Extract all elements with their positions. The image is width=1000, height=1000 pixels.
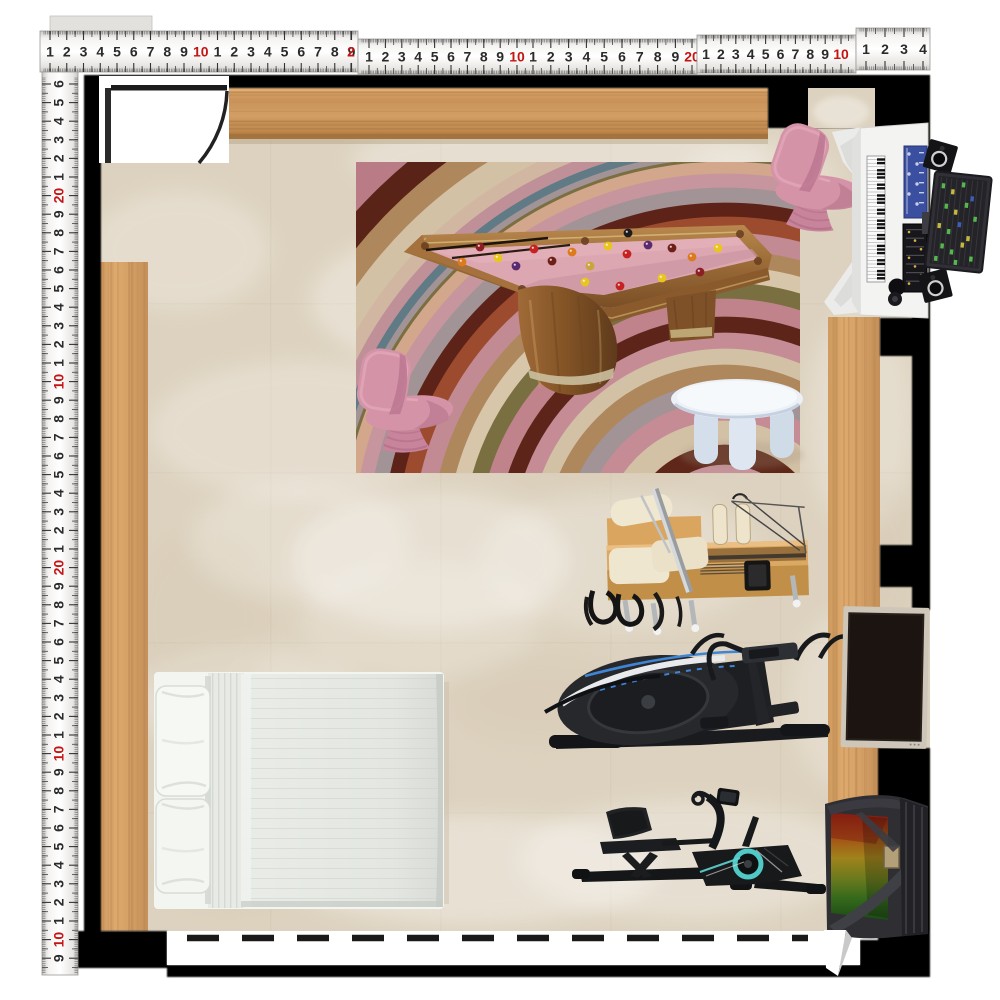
svg-text:2: 2 bbox=[717, 46, 725, 62]
svg-text:8: 8 bbox=[163, 44, 171, 60]
svg-text:3: 3 bbox=[565, 49, 573, 65]
svg-text:4: 4 bbox=[747, 46, 755, 62]
svg-text:5: 5 bbox=[113, 44, 121, 60]
svg-text:9: 9 bbox=[51, 396, 67, 404]
svg-text:4: 4 bbox=[51, 861, 67, 869]
svg-text:6: 6 bbox=[447, 49, 455, 65]
svg-text:8: 8 bbox=[51, 601, 67, 609]
svg-text:1: 1 bbox=[51, 173, 67, 181]
svg-text:9: 9 bbox=[180, 44, 188, 60]
svg-text:1: 1 bbox=[51, 359, 67, 367]
svg-text:9: 9 bbox=[496, 49, 504, 65]
svg-text:3: 3 bbox=[247, 44, 255, 60]
svg-text:8: 8 bbox=[51, 415, 67, 423]
svg-text:5: 5 bbox=[51, 656, 67, 664]
svg-text:5: 5 bbox=[762, 46, 770, 62]
svg-text:8: 8 bbox=[51, 229, 67, 237]
svg-text:2: 2 bbox=[382, 49, 390, 65]
svg-text:20: 20 bbox=[51, 560, 67, 576]
svg-text:7: 7 bbox=[147, 44, 155, 60]
svg-text:1: 1 bbox=[46, 44, 54, 60]
svg-text:7: 7 bbox=[636, 49, 644, 65]
svg-text:8: 8 bbox=[51, 787, 67, 795]
svg-text:9: 9 bbox=[821, 46, 829, 62]
svg-text:7: 7 bbox=[792, 46, 800, 62]
svg-text:8: 8 bbox=[331, 44, 339, 60]
svg-text:1: 1 bbox=[365, 49, 373, 65]
svg-text:9: 9 bbox=[51, 210, 67, 218]
svg-text:2: 2 bbox=[51, 340, 67, 348]
svg-text:10: 10 bbox=[51, 374, 67, 390]
svg-text:4: 4 bbox=[414, 49, 422, 65]
svg-text:1: 1 bbox=[529, 49, 537, 65]
svg-text:6: 6 bbox=[130, 44, 138, 60]
svg-text:1: 1 bbox=[51, 731, 67, 739]
svg-text:3: 3 bbox=[398, 49, 406, 65]
svg-text:6: 6 bbox=[51, 266, 67, 274]
svg-text:10: 10 bbox=[51, 746, 67, 762]
svg-text:2: 2 bbox=[63, 44, 71, 60]
svg-text:6: 6 bbox=[51, 80, 67, 88]
svg-text:3: 3 bbox=[51, 322, 67, 330]
svg-text:10: 10 bbox=[833, 46, 849, 62]
svg-text:7: 7 bbox=[51, 619, 67, 627]
svg-text:4: 4 bbox=[51, 489, 67, 497]
svg-text:5: 5 bbox=[51, 842, 67, 850]
svg-text:2: 2 bbox=[51, 898, 67, 906]
svg-text:6: 6 bbox=[297, 44, 305, 60]
svg-text:1: 1 bbox=[214, 44, 222, 60]
svg-text:9: 9 bbox=[51, 582, 67, 590]
svg-text:1: 1 bbox=[862, 41, 870, 57]
svg-text:2: 2 bbox=[547, 49, 555, 65]
svg-text:6: 6 bbox=[51, 452, 67, 460]
svg-text:3: 3 bbox=[51, 694, 67, 702]
svg-text:5: 5 bbox=[51, 284, 67, 292]
svg-text:10: 10 bbox=[51, 932, 67, 948]
svg-text:4: 4 bbox=[264, 44, 272, 60]
svg-text:4: 4 bbox=[51, 117, 67, 125]
svg-text:3: 3 bbox=[900, 41, 908, 57]
svg-text:5: 5 bbox=[600, 49, 608, 65]
svg-text:1: 1 bbox=[51, 917, 67, 925]
svg-text:10: 10 bbox=[193, 44, 209, 60]
svg-text:2: 2 bbox=[51, 526, 67, 534]
svg-text:7: 7 bbox=[51, 805, 67, 813]
svg-text:20: 20 bbox=[51, 188, 67, 204]
svg-text:3: 3 bbox=[732, 46, 740, 62]
svg-text:1: 1 bbox=[51, 545, 67, 553]
svg-text:8: 8 bbox=[654, 49, 662, 65]
svg-text:6: 6 bbox=[777, 46, 785, 62]
svg-text:2: 2 bbox=[230, 44, 238, 60]
svg-text:5: 5 bbox=[431, 49, 439, 65]
svg-text:9: 9 bbox=[51, 954, 67, 962]
svg-text:10: 10 bbox=[509, 49, 525, 65]
svg-text:6: 6 bbox=[51, 824, 67, 832]
svg-text:3: 3 bbox=[51, 880, 67, 888]
svg-text:8: 8 bbox=[480, 49, 488, 65]
svg-text:4: 4 bbox=[51, 675, 67, 683]
svg-text:2: 2 bbox=[51, 154, 67, 162]
svg-text:7: 7 bbox=[464, 49, 472, 65]
svg-text:6: 6 bbox=[51, 638, 67, 646]
svg-text:3: 3 bbox=[51, 508, 67, 516]
svg-text:4: 4 bbox=[51, 303, 67, 311]
svg-text:5: 5 bbox=[51, 98, 67, 106]
svg-text:5: 5 bbox=[281, 44, 289, 60]
svg-text:4: 4 bbox=[583, 49, 591, 65]
svg-text:2: 2 bbox=[347, 44, 355, 60]
svg-text:3: 3 bbox=[51, 136, 67, 144]
svg-text:4: 4 bbox=[96, 44, 104, 60]
svg-text:5: 5 bbox=[51, 470, 67, 478]
svg-text:6: 6 bbox=[618, 49, 626, 65]
svg-text:2: 2 bbox=[51, 712, 67, 720]
svg-text:8: 8 bbox=[806, 46, 814, 62]
svg-text:9: 9 bbox=[672, 49, 680, 65]
svg-text:7: 7 bbox=[51, 433, 67, 441]
svg-text:4: 4 bbox=[919, 41, 927, 57]
svg-text:7: 7 bbox=[51, 247, 67, 255]
svg-text:7: 7 bbox=[314, 44, 322, 60]
svg-text:9: 9 bbox=[51, 768, 67, 776]
svg-text:2: 2 bbox=[881, 41, 889, 57]
svg-text:3: 3 bbox=[80, 44, 88, 60]
svg-text:1: 1 bbox=[702, 46, 710, 62]
